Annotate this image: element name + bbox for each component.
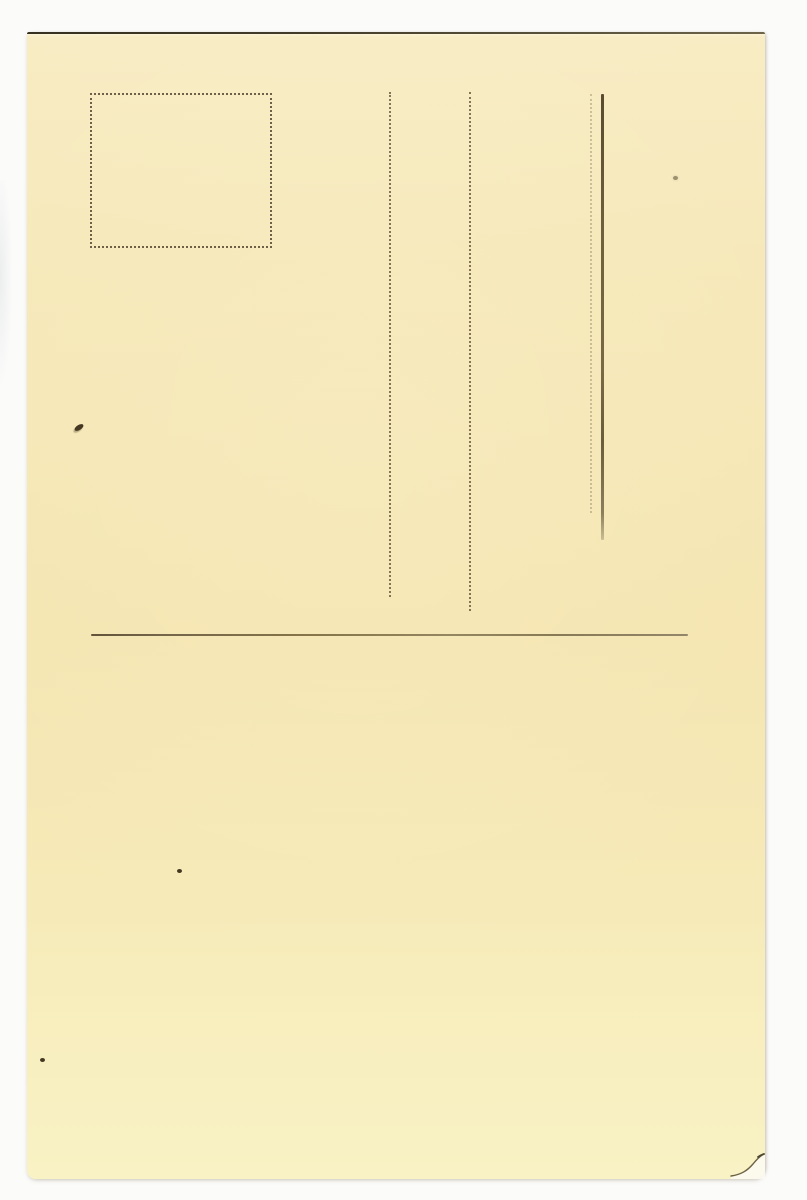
ink-speck-lower-middle bbox=[177, 869, 182, 873]
address-dotted-line-1 bbox=[389, 92, 391, 597]
horizontal-divider-rule bbox=[91, 634, 688, 636]
ink-speck-left-edge bbox=[40, 1058, 45, 1062]
photo-background bbox=[0, 0, 807, 1200]
address-solid-line bbox=[601, 94, 604, 540]
ink-speck-left bbox=[73, 423, 84, 433]
corner-crease bbox=[729, 1144, 765, 1179]
address-dotted-line-2 bbox=[469, 92, 471, 611]
address-dotted-line-3-faint bbox=[590, 94, 592, 513]
postcard-back bbox=[27, 32, 765, 1179]
ink-speck-upper-right bbox=[673, 176, 678, 180]
card-top-edge-shadow bbox=[27, 32, 765, 34]
stamp-box bbox=[90, 93, 272, 248]
